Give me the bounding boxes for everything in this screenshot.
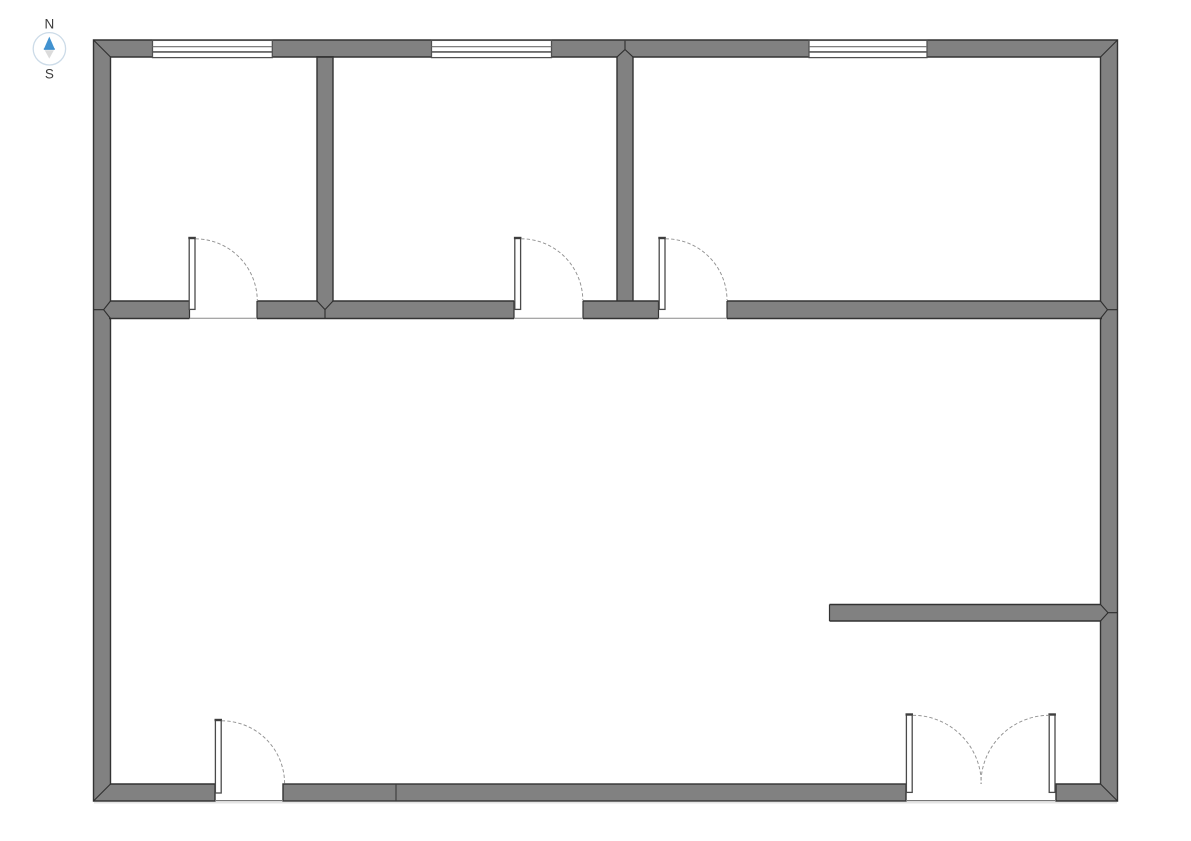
svg-text:S: S [45, 66, 54, 81]
svg-text:N: N [45, 17, 55, 32]
